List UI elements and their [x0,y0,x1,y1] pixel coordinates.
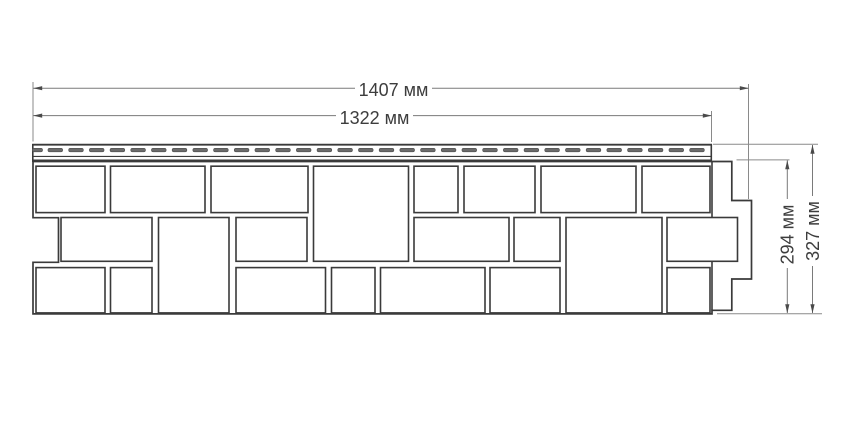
svg-text:294 мм: 294 мм [778,205,798,265]
svg-text:1407 мм: 1407 мм [359,80,429,100]
svg-text:1322 мм: 1322 мм [340,108,410,128]
svg-text:327 мм: 327 мм [803,201,823,261]
